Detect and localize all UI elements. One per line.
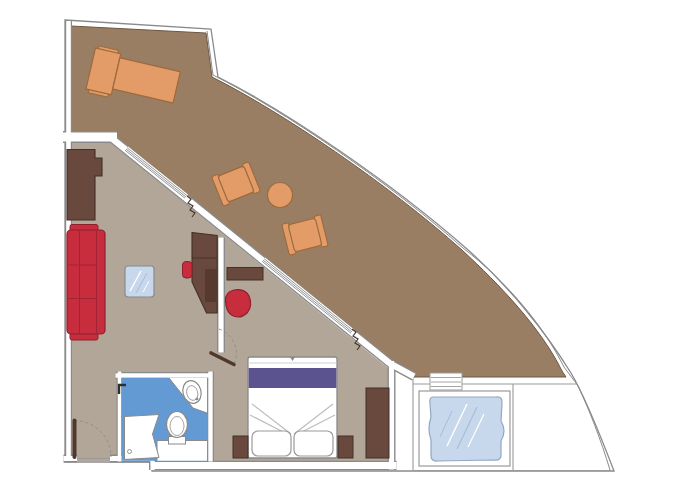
round-side-table bbox=[268, 183, 293, 208]
desk-chair bbox=[183, 262, 193, 279]
sofa bbox=[67, 225, 105, 341]
bed-runner bbox=[249, 368, 337, 388]
nightstand-right bbox=[338, 436, 353, 458]
floor-plan-canvas bbox=[0, 0, 680, 491]
nightstand-left bbox=[233, 436, 248, 458]
pillow-right bbox=[294, 431, 333, 456]
double-bed bbox=[248, 357, 337, 458]
shower bbox=[125, 415, 160, 460]
glass-coffee-table bbox=[125, 266, 154, 297]
floor-plan-page bbox=[0, 0, 680, 491]
wardrobe-bedroom bbox=[366, 388, 389, 458]
deck-steps bbox=[430, 373, 462, 390]
tub-chair bbox=[225, 290, 250, 317]
toilet bbox=[167, 412, 188, 445]
pillow-left bbox=[252, 431, 291, 456]
console-shelf bbox=[227, 268, 263, 281]
